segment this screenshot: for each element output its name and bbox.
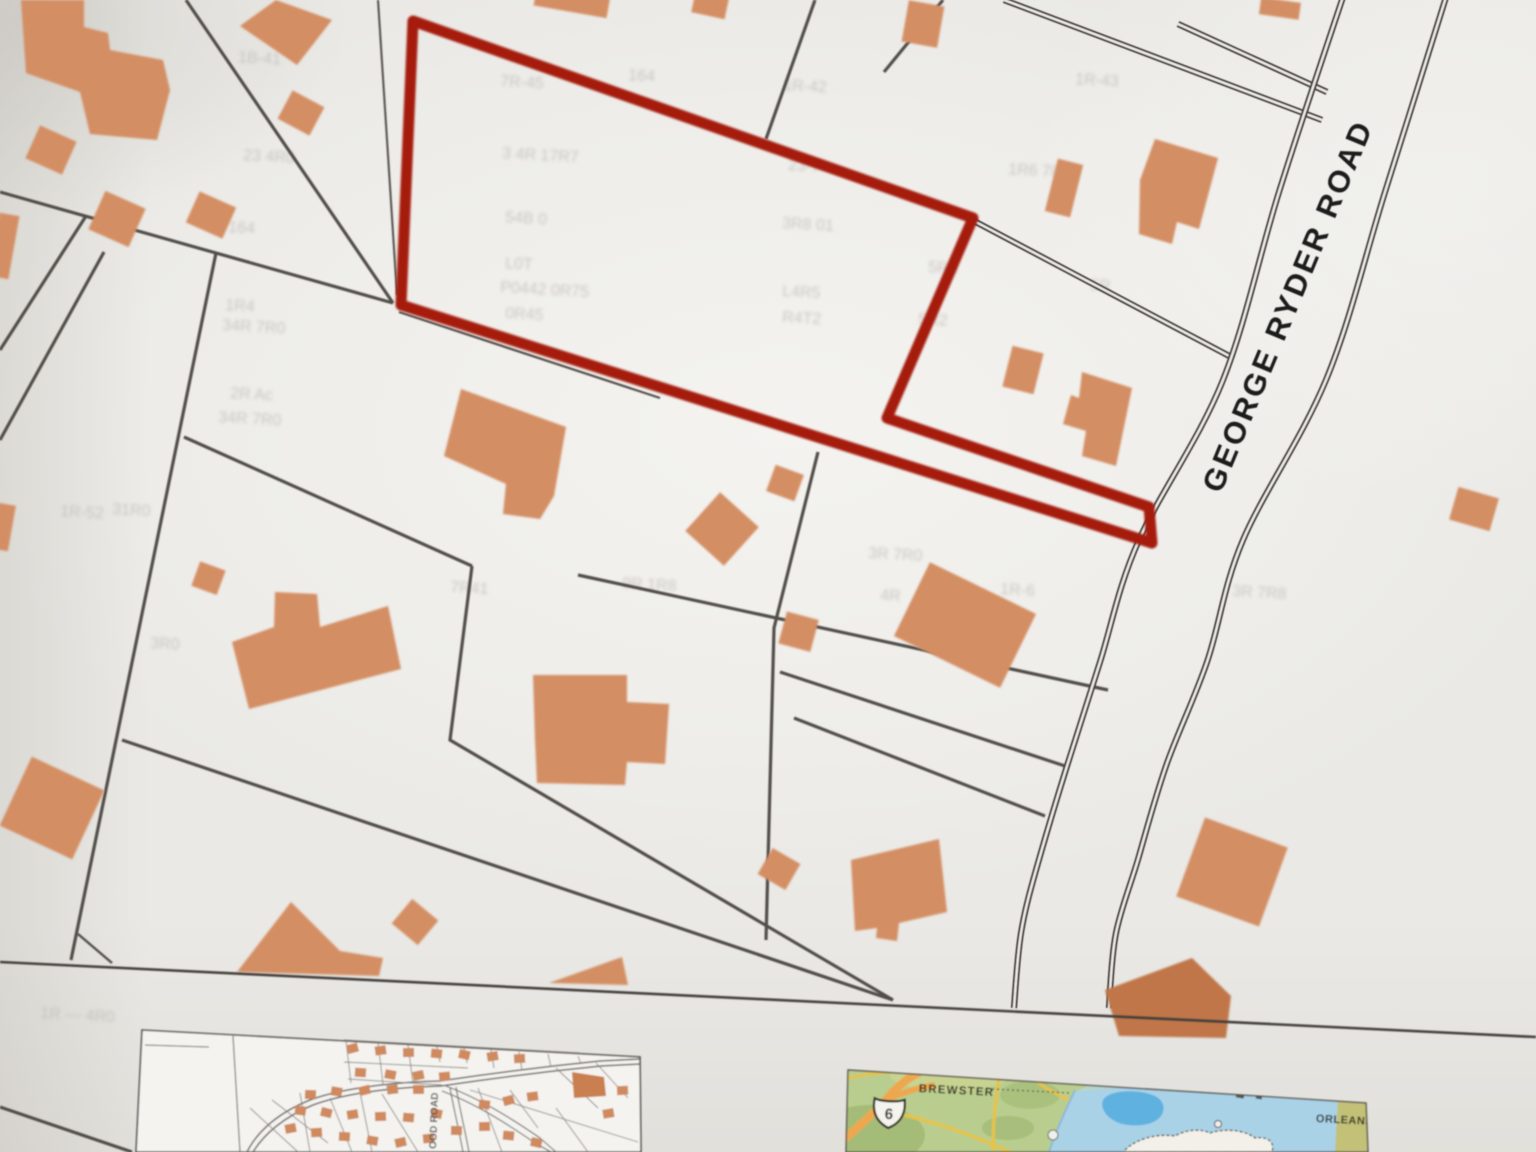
svg-text:4R: 4R [880, 587, 901, 605]
svg-text:34R 7R0: 34R 7R0 [218, 409, 282, 430]
svg-text:7R-45: 7R-45 [500, 73, 545, 92]
svg-text:3R 7R8: 3R 7R8 [1232, 583, 1287, 603]
svg-text:3R8 01: 3R8 01 [782, 215, 835, 235]
svg-text:0R45: 0R45 [505, 305, 544, 324]
svg-text:1R-42: 1R-42 [783, 77, 828, 96]
svg-text:164: 164 [628, 67, 656, 85]
svg-text:L4R5: L4R5 [782, 283, 821, 302]
svg-text:1R-6: 1R-6 [1000, 581, 1036, 600]
svg-text:OOD ROAD: OOD ROAD [428, 1092, 441, 1149]
svg-text:2R Ac: 2R Ac [230, 385, 274, 404]
svg-text:1B-41: 1B-41 [238, 49, 282, 68]
svg-text:L0T: L0T [505, 255, 534, 274]
svg-text:R4T2: R4T2 [782, 309, 822, 328]
svg-text:1R-52: 1R-52 [60, 503, 105, 522]
svg-text:1R-43: 1R-43 [1075, 71, 1120, 90]
svg-text:6: 6 [884, 1106, 893, 1123]
svg-text:34R 7R0: 34R 7R0 [222, 317, 286, 338]
svg-text:3R0: 3R0 [150, 635, 180, 654]
svg-text:164: 164 [228, 219, 256, 237]
svg-text:54B 0: 54B 0 [505, 209, 548, 228]
svg-text:31R0: 31R0 [112, 501, 151, 520]
svg-text:1R4: 1R4 [225, 297, 255, 316]
svg-text:3R 7R0: 3R 7R0 [868, 545, 923, 565]
